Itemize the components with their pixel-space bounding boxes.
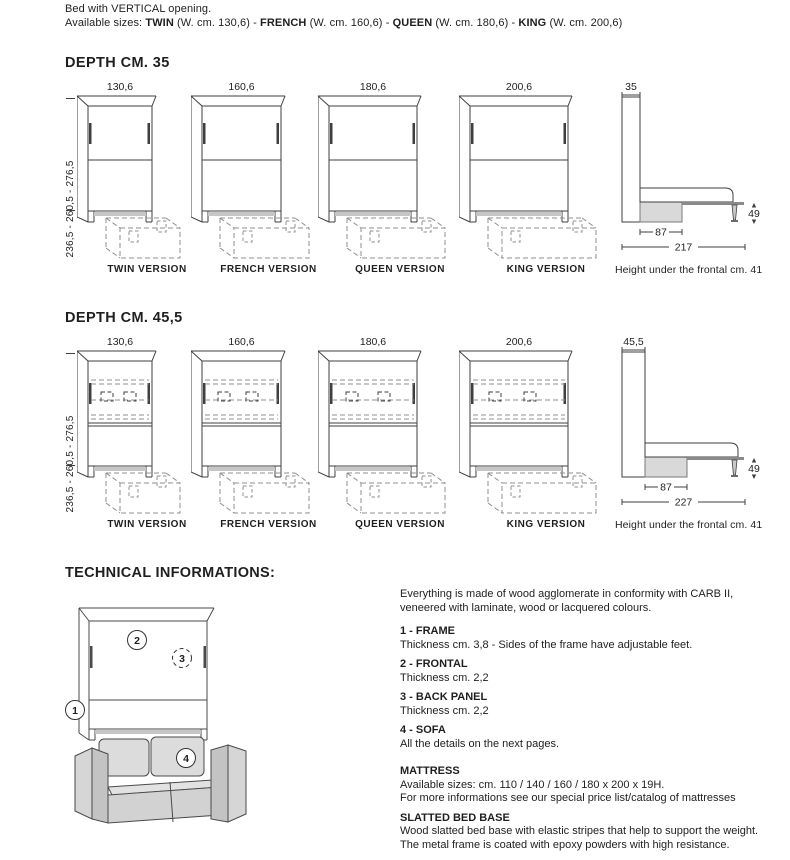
cabinet-drawing: 160,6 bbox=[191, 80, 312, 260]
catalog-page: { "colors": { "line": "#3f3f3f", "dash":… bbox=[0, 0, 790, 857]
intro-line-available-sizes: Available sizes: TWIN (W. cm. 130,6) - F… bbox=[65, 16, 622, 30]
height-range-label: 236,5 - 260,5 - 276,5 bbox=[65, 404, 77, 524]
size-text: (W. cm. 200,6) bbox=[546, 17, 622, 29]
tech-item-line: The metal frame is coated with epoxy pow… bbox=[400, 839, 790, 853]
tech-item-line: Thickness cm. 2,2 bbox=[400, 672, 790, 686]
cabinet-figure-queen: 180,6 bbox=[318, 80, 448, 265]
version-label-twin: TWIN VERSION bbox=[94, 519, 200, 530]
technical-title: TECHNICAL INFORMATIONS: bbox=[65, 565, 275, 581]
intro-block: Bed with VERTICAL opening. Available siz… bbox=[65, 2, 622, 30]
version-label-king: KING VERSION bbox=[476, 264, 616, 275]
handle-icon bbox=[203, 383, 206, 404]
callout-2-number: 2 bbox=[134, 635, 140, 647]
height-range-label: 236,5 - 260,5 - 276,5 bbox=[65, 149, 77, 269]
cabinet-figure-king: 200,6 bbox=[459, 335, 599, 520]
height-dim-label: 49 bbox=[748, 463, 760, 475]
tech-item-title: 1 - FRAME bbox=[400, 625, 790, 639]
width-dim-label: 130,6 bbox=[107, 81, 133, 93]
size-name: TWIN bbox=[145, 17, 174, 29]
tech-item: 3 - BACK PANELThickness cm. 2,2 bbox=[400, 691, 790, 718]
handle-icon bbox=[471, 383, 474, 404]
sofa-footprint-dashed bbox=[220, 473, 309, 513]
tech-item: 4 - SOFAAll the details on the next page… bbox=[400, 724, 790, 751]
handle-icon bbox=[330, 383, 333, 404]
handle-icon bbox=[413, 383, 416, 404]
open-depth-dim-label: 227 bbox=[675, 497, 693, 509]
tech-item: MATTRESSAvailable sizes: cm. 110 / 140 /… bbox=[400, 765, 790, 806]
handle-icon bbox=[203, 123, 206, 144]
callout-1-number: 1 bbox=[72, 705, 78, 717]
sofa-footprint-dashed bbox=[220, 218, 309, 258]
tech-item-line: Available sizes: cm. 110 / 140 / 160 / 1… bbox=[400, 779, 790, 793]
bed-leg bbox=[732, 460, 737, 475]
width-dim-label: 180,6 bbox=[360, 336, 386, 348]
side-view-drawing: 354987217 bbox=[615, 80, 790, 255]
cabinet-drawing: 180,6 bbox=[318, 335, 448, 515]
width-dim-label: 130,6 bbox=[107, 336, 133, 348]
tech-item: SLATTED BED BASEWood slatted bed base wi… bbox=[400, 812, 790, 853]
width-dim-label: 180,6 bbox=[360, 81, 386, 93]
handle-icon bbox=[564, 383, 567, 404]
tech-item-title: 2 - FRONTAL bbox=[400, 658, 790, 672]
size-text: (W. cm. 180,6) - bbox=[432, 17, 518, 29]
intro-line-1: Bed with VERTICAL opening. bbox=[65, 2, 622, 16]
technical-intro-line: veneered with laminate, wood or lacquere… bbox=[400, 602, 790, 616]
width-dim-label: 160,6 bbox=[228, 336, 254, 348]
bed-with-sofa-drawing: 1234 bbox=[62, 593, 342, 855]
size-name: QUEEN bbox=[393, 17, 433, 29]
callout-3-number: 3 bbox=[179, 653, 185, 665]
tech-item-line: For more informations see our special pr… bbox=[400, 792, 790, 806]
handle-icon bbox=[90, 646, 93, 668]
cabinet-figure-french: 160,6 bbox=[191, 335, 312, 520]
cabinet-drawing: 200,6 bbox=[459, 80, 599, 260]
sofa-footprint-dashed bbox=[488, 473, 596, 513]
handle-icon bbox=[330, 123, 333, 144]
handle-icon bbox=[413, 123, 416, 144]
height-dim-label: 49 bbox=[748, 208, 760, 220]
tech-item-title: 4 - SOFA bbox=[400, 724, 790, 738]
cabinet-drawing: 200,6 bbox=[459, 335, 599, 515]
technical-info-column: Everything is made of wood agglomerate i… bbox=[400, 588, 790, 852]
tech-item-line: Thickness cm. 3,8 - Sides of the frame h… bbox=[400, 639, 790, 653]
size-text: Available sizes: bbox=[65, 17, 145, 29]
depth-dim-label: 35 bbox=[625, 81, 637, 93]
version-label-french: FRENCH VERSION bbox=[208, 519, 329, 530]
cabinet-figure-twin: 130,6 bbox=[77, 80, 183, 265]
tech-item-title: SLATTED BED BASE bbox=[400, 812, 790, 826]
cabinet-drawing: 160,6 bbox=[191, 335, 312, 515]
tech-item-line: Thickness cm. 2,2 bbox=[400, 705, 790, 719]
dim-tick bbox=[66, 353, 75, 354]
bed-leg bbox=[732, 205, 737, 220]
handle-icon bbox=[204, 646, 207, 668]
sofa-footprint-dashed bbox=[106, 218, 180, 258]
cabinet-figure-king: 200,6 bbox=[459, 80, 599, 265]
technical-intro-line: Everything is made of wood agglomerate i… bbox=[400, 588, 790, 602]
size-name: KING bbox=[518, 17, 546, 29]
tech-item-line: Wood slatted bed base with elastic strip… bbox=[400, 825, 790, 839]
handle-icon bbox=[564, 123, 567, 144]
handle-icon bbox=[471, 123, 474, 144]
width-dim-label: 200,6 bbox=[506, 336, 532, 348]
sofa-depth-dim-label: 87 bbox=[655, 227, 667, 239]
cabinet-drawing: 180,6 bbox=[318, 80, 448, 260]
side-view-figure: 45,54987227 bbox=[615, 335, 790, 510]
sofa-footprint-dashed bbox=[347, 473, 445, 513]
sofa-drawing bbox=[75, 737, 246, 823]
size-text: (W. cm. 130,6) - bbox=[174, 17, 260, 29]
sofa-footprint-dashed bbox=[488, 218, 596, 258]
side-view-caption: Height under the frontal cm. 41 bbox=[615, 264, 790, 276]
sofa-footprint-dashed bbox=[347, 218, 445, 258]
handle-icon bbox=[148, 383, 151, 404]
side-view-drawing: 45,54987227 bbox=[615, 335, 790, 510]
callout-4-number: 4 bbox=[183, 753, 189, 765]
version-label-french: FRENCH VERSION bbox=[208, 264, 329, 275]
sofa-footprint-dashed bbox=[106, 473, 180, 513]
size-name: FRENCH bbox=[260, 17, 306, 29]
section-title: DEPTH CM. 45,5 bbox=[65, 310, 183, 326]
version-label-twin: TWIN VERSION bbox=[94, 264, 200, 275]
cabinet-figure-queen: 180,6 bbox=[318, 335, 448, 520]
handle-icon bbox=[277, 123, 280, 144]
width-dim-label: 160,6 bbox=[228, 81, 254, 93]
technical-drawing: 1234 bbox=[62, 593, 342, 855]
tech-item-line: All the details on the next pages. bbox=[400, 738, 790, 752]
technical-intro: Everything is made of wood agglomerate i… bbox=[400, 588, 790, 615]
cabinet-drawing: 130,6 bbox=[77, 80, 183, 260]
sofa-depth-dim-label: 87 bbox=[660, 482, 672, 494]
handle-icon bbox=[148, 123, 151, 144]
cabinet-drawing: 130,6 bbox=[77, 335, 183, 515]
cabinet-figure-twin: 130,6 bbox=[77, 335, 183, 520]
section-title: DEPTH CM. 35 bbox=[65, 55, 170, 71]
size-text: (W. cm. 160,6) - bbox=[306, 17, 392, 29]
tech-item: 1 - FRAMEThickness cm. 3,8 - Sides of th… bbox=[400, 625, 790, 652]
section-technical: TECHNICAL INFORMATIONS: 1234 Everything … bbox=[0, 565, 790, 857]
version-label-queen: QUEEN VERSION bbox=[335, 264, 465, 275]
side-view-caption: Height under the frontal cm. 41 bbox=[615, 519, 790, 531]
cabinet-figure-french: 160,6 bbox=[191, 80, 312, 265]
dim-tick bbox=[66, 210, 75, 211]
depth-dim-label: 45,5 bbox=[623, 336, 644, 348]
width-dim-label: 200,6 bbox=[506, 81, 532, 93]
version-label-queen: QUEEN VERSION bbox=[335, 519, 465, 530]
side-view-figure: 354987217 bbox=[615, 80, 790, 255]
handle-icon bbox=[89, 383, 92, 404]
dim-tick bbox=[66, 98, 75, 99]
tech-item-title: MATTRESS bbox=[400, 765, 790, 779]
tech-item-title: 3 - BACK PANEL bbox=[400, 691, 790, 705]
handle-icon bbox=[89, 123, 92, 144]
tech-item: 2 - FRONTALThickness cm. 2,2 bbox=[400, 658, 790, 685]
open-depth-dim-label: 217 bbox=[675, 242, 693, 254]
handle-icon bbox=[277, 383, 280, 404]
version-label-king: KING VERSION bbox=[476, 519, 616, 530]
dim-tick bbox=[66, 465, 75, 466]
